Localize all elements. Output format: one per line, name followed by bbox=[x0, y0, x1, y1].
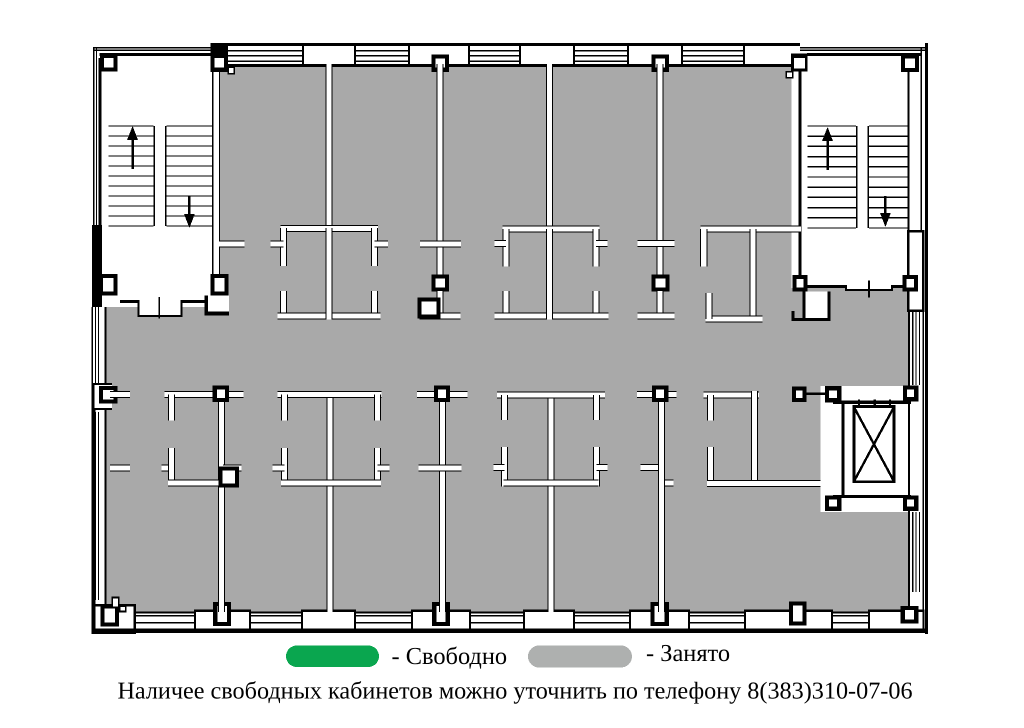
svg-text:- Занято: - Занято bbox=[646, 640, 730, 667]
svg-text:Наличее свободных кабинетов мо: Наличее свободных кабинетов можно уточни… bbox=[117, 678, 912, 705]
svg-text:- Свободно: - Свободно bbox=[392, 643, 508, 670]
